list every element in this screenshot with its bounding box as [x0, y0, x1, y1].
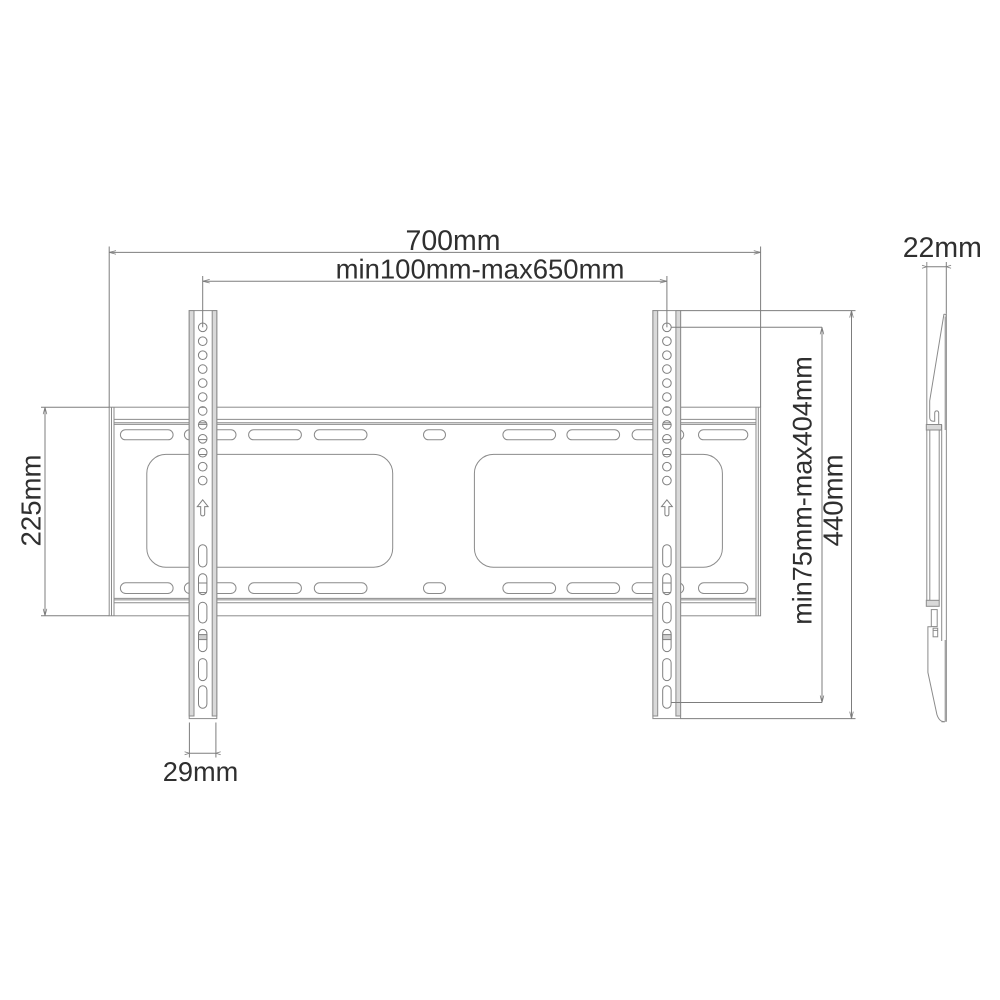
svg-text:min100mm-max650mm: min100mm-max650mm	[336, 254, 625, 285]
svg-text:700mm: 700mm	[405, 225, 500, 257]
svg-text:22mm: 22mm	[903, 232, 982, 264]
svg-text:min75mm-max404mm: min75mm-max404mm	[788, 356, 818, 625]
svg-text:225mm: 225mm	[16, 454, 47, 546]
svg-text:440mm: 440mm	[818, 454, 849, 546]
svg-text:29mm: 29mm	[163, 756, 239, 787]
